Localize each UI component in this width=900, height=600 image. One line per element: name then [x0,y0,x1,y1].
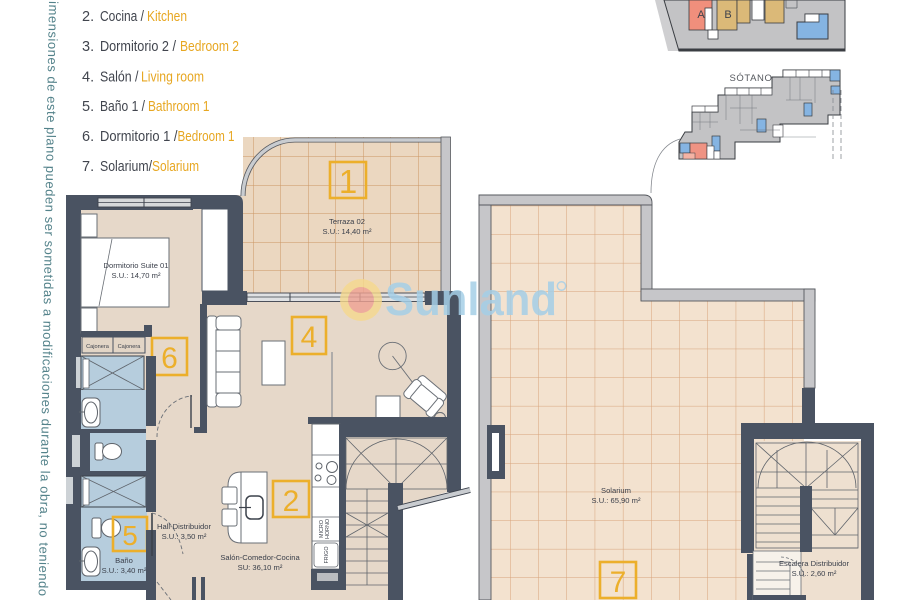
svg-text:Living room: Living room [141,70,204,86]
svg-text:Bedroom 1: Bedroom 1 [178,129,235,145]
svg-text:Dormitorio 2 /: Dormitorio 2 / [100,39,177,55]
svg-text:MICRO: MICRO [319,520,325,538]
svg-text:1: 1 [339,163,357,200]
svg-text:Dormitorio Suite 01: Dormitorio Suite 01 [104,261,169,270]
svg-text:Baño 1 /: Baño 1 / [100,99,146,115]
svg-text:S.U.: 3,50 m²: S.U.: 3,50 m² [162,532,207,541]
svg-text:7.: 7. [82,159,94,175]
svg-text:Sunland: Sunland [385,273,557,325]
svg-text:Cajonera: Cajonera [118,344,142,350]
svg-text:SÓTANO: SÓTANO [729,73,772,84]
svg-text:5: 5 [122,520,138,551]
svg-text:Dormitorio 1 /: Dormitorio 1 / [100,129,178,145]
svg-text:4.: 4. [82,70,94,86]
svg-text:Bedroom 2: Bedroom 2 [180,39,239,55]
svg-text:Solarium/: Solarium/ [100,159,153,175]
svg-text:HORNO: HORNO [325,519,331,539]
svg-text:Kitchen: Kitchen [147,9,187,25]
svg-text:6.: 6. [82,129,94,145]
svg-text:S.U.: 3,40 m²: S.U.: 3,40 m² [102,566,147,575]
svg-text:Solarium: Solarium [152,159,199,175]
svg-text:SU: 36,10 m²: SU: 36,10 m² [238,563,283,572]
svg-text:5.: 5. [82,99,94,115]
svg-text:6: 6 [161,342,178,375]
svg-text:4: 4 [301,321,318,354]
svg-text:Bathroom 1: Bathroom 1 [148,99,210,115]
svg-text:Hall-Distribuidor: Hall-Distribuidor [157,522,211,531]
svg-text:S.U.: 2,60 m²: S.U.: 2,60 m² [792,569,837,578]
svg-text:7: 7 [610,566,627,599]
svg-text:Terraza 02: Terraza 02 [329,217,365,226]
svg-text:Cajonera: Cajonera [86,344,110,350]
svg-text:Cocina /: Cocina / [100,9,145,25]
svg-text:2.: 2. [82,9,94,25]
svg-text:FRIGO: FRIGO [324,546,330,563]
svg-text:Salón-Comedor-Cocina: Salón-Comedor-Cocina [220,553,300,562]
svg-text:Baño: Baño [115,556,133,565]
svg-text:S.U.: 14,70 m²: S.U.: 14,70 m² [112,271,161,280]
svg-text:A: A [697,9,705,21]
svg-text:Solarium: Solarium [601,486,631,495]
svg-text:S.U.: 65,90 m²: S.U.: 65,90 m² [592,496,641,505]
svg-text:Salón /: Salón / [100,70,139,86]
svg-text:Escalera Distribuidor: Escalera Distribuidor [779,559,850,568]
svg-text:B: B [724,9,731,21]
svg-text:S.U.: 14,40 m²: S.U.: 14,40 m² [323,227,372,236]
svg-text:3.: 3. [82,39,94,55]
svg-text:2: 2 [283,485,300,518]
